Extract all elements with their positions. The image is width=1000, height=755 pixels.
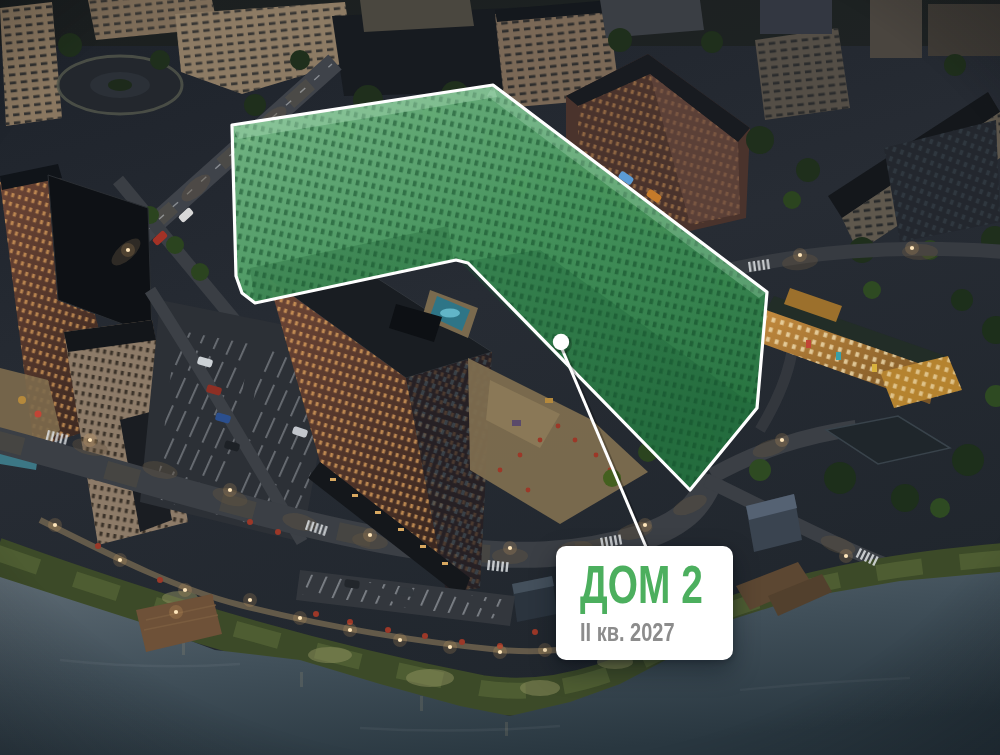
vignette [0, 0, 1000, 755]
masterplan-render [0, 0, 1000, 755]
masterplan-view: ДОМ 2 II кв. 2027 [0, 0, 1000, 755]
building-2-card[interactable]: ДОМ 2 II кв. 2027 [556, 546, 733, 660]
building-card-title: ДОМ 2 [580, 557, 690, 612]
building-card-completion: II кв. 2027 [580, 620, 702, 645]
marker-dot-icon[interactable] [553, 334, 569, 350]
